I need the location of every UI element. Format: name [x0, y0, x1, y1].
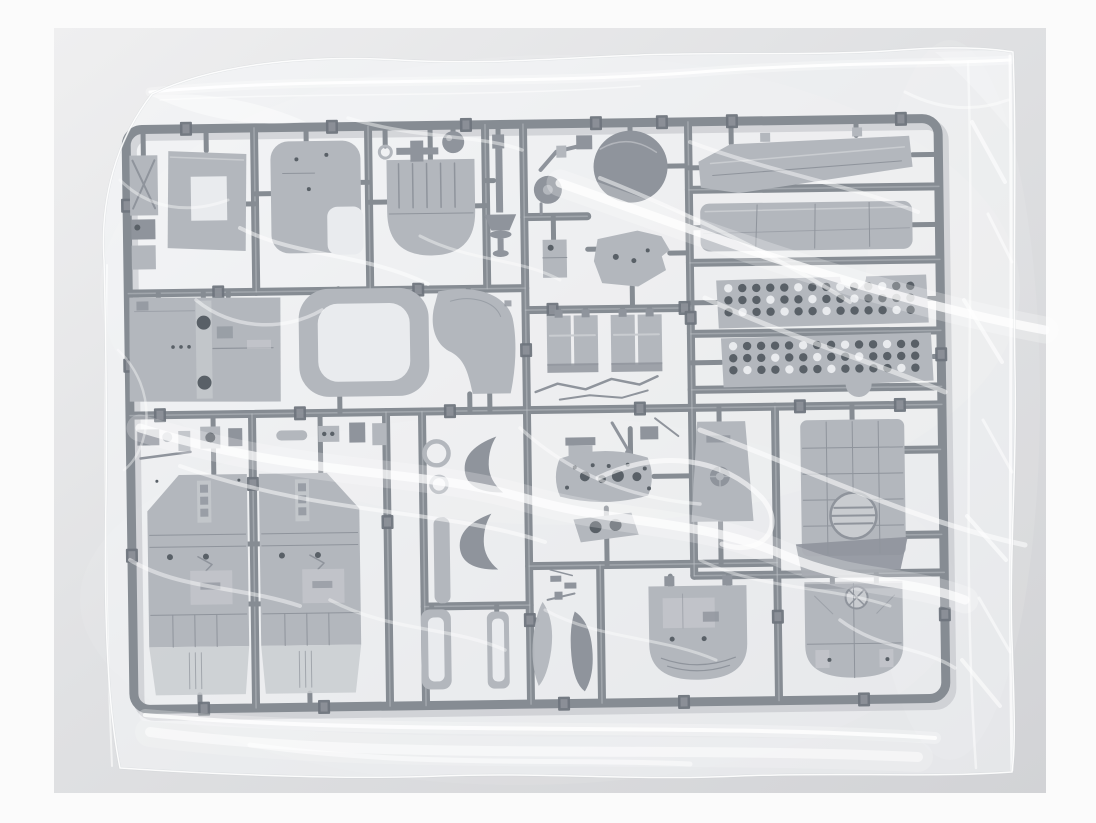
- part-number-tab-face: [658, 118, 665, 127]
- part-number-tab-face: [328, 122, 335, 131]
- part-number-tab-face: [796, 402, 803, 411]
- molded-part: [131, 219, 155, 239]
- molded-part: [852, 127, 862, 136]
- part-number-tab-face: [182, 124, 189, 133]
- molded-part: [426, 164, 427, 208]
- part-number-tab-face: [321, 702, 328, 711]
- molded-part: [664, 576, 674, 586]
- part-number-tab-face: [774, 612, 781, 621]
- part-number-tab-face: [446, 407, 453, 416]
- molded-part: [189, 653, 190, 689]
- part-number-tab-face: [728, 117, 735, 126]
- molded-part: [410, 141, 423, 162]
- part-number-tab-face: [938, 350, 945, 359]
- molded-part: [201, 653, 202, 689]
- part-number-tab-face: [462, 120, 469, 129]
- part-number-tab-face: [123, 201, 130, 210]
- molded-part: [200, 497, 208, 505]
- molded-part: [835, 523, 873, 524]
- molded-part: [440, 163, 441, 207]
- part-number-tab-face: [941, 610, 948, 619]
- seat: [565, 437, 595, 445]
- molded-part: [504, 300, 511, 306]
- molded-part: [614, 334, 659, 335]
- molded-part: [149, 646, 250, 695]
- molded-part: [547, 363, 598, 373]
- molded-part: [815, 650, 829, 668]
- part-number-tab-face: [523, 346, 530, 355]
- molded-part: [372, 423, 386, 445]
- part-number-tab-face: [384, 518, 391, 527]
- molded-part: [428, 617, 445, 681]
- molded-part: [869, 202, 870, 246]
- molded-part: [550, 335, 595, 336]
- molded-part: [722, 575, 732, 585]
- part-number-tab-face: [897, 114, 904, 123]
- molded-part: [298, 483, 306, 491]
- molded-part: [611, 362, 662, 372]
- molded-part: [298, 507, 306, 515]
- molded-part: [305, 651, 306, 687]
- molded-part: [834, 507, 872, 508]
- molded-part: [574, 315, 599, 365]
- runner-highlight: [906, 534, 942, 535]
- part-number-tab-face: [687, 313, 694, 322]
- molded-part: [640, 426, 658, 439]
- screenshot-stage: [0, 0, 1096, 823]
- molded-part: [555, 310, 563, 318]
- part-number-tab-face: [296, 409, 303, 418]
- molded-part: [217, 326, 233, 338]
- molded-part: [495, 148, 503, 212]
- molded-part: [638, 314, 663, 364]
- molded-part: [582, 309, 590, 317]
- radiator-door: [547, 316, 572, 366]
- molded-part: [191, 176, 228, 220]
- molded-part: [312, 581, 332, 588]
- molded-part: [317, 303, 410, 382]
- molded-part: [327, 206, 364, 254]
- molded-part: [200, 509, 208, 517]
- runner-highlight: [905, 449, 941, 450]
- molded-part: [247, 340, 271, 349]
- part-number-tab-face: [156, 411, 163, 420]
- radiator-door: [611, 315, 636, 365]
- part-number-tab-face: [680, 697, 687, 706]
- molded-part: [703, 611, 719, 621]
- part-number-tab-face: [215, 288, 222, 297]
- part-number-tab-face: [415, 285, 422, 294]
- part-number-tab-face: [592, 119, 599, 128]
- photo-svg: [0, 0, 1096, 823]
- molded-part: [398, 164, 399, 208]
- molded-part: [318, 426, 339, 442]
- molded-part: [619, 309, 627, 317]
- molded-part: [276, 430, 307, 440]
- molded-part: [299, 651, 300, 687]
- molded-part: [412, 164, 413, 208]
- molded-part: [556, 146, 566, 158]
- molded-part: [564, 582, 576, 588]
- molded-part: [136, 301, 148, 310]
- molded-part: [311, 651, 312, 687]
- molded-part: [576, 135, 592, 149]
- molded-part: [132, 245, 156, 269]
- part-number-tab-face: [201, 704, 208, 713]
- molded-part: [831, 515, 875, 516]
- molded-part: [760, 133, 770, 142]
- molded-part: [646, 308, 654, 316]
- molded-part: [349, 422, 365, 442]
- molded-part: [550, 576, 561, 582]
- molded-part: [200, 485, 208, 493]
- molded-part: [498, 238, 504, 250]
- molded-part: [454, 163, 455, 207]
- strip-part: [433, 517, 450, 603]
- part-number-tab-face: [896, 400, 903, 409]
- part-number-tab-face: [860, 695, 867, 704]
- part-number-tab-face: [636, 404, 643, 413]
- part-number-tab-face: [526, 616, 533, 625]
- molded-part: [195, 653, 196, 689]
- part-number-tab-face: [560, 699, 567, 708]
